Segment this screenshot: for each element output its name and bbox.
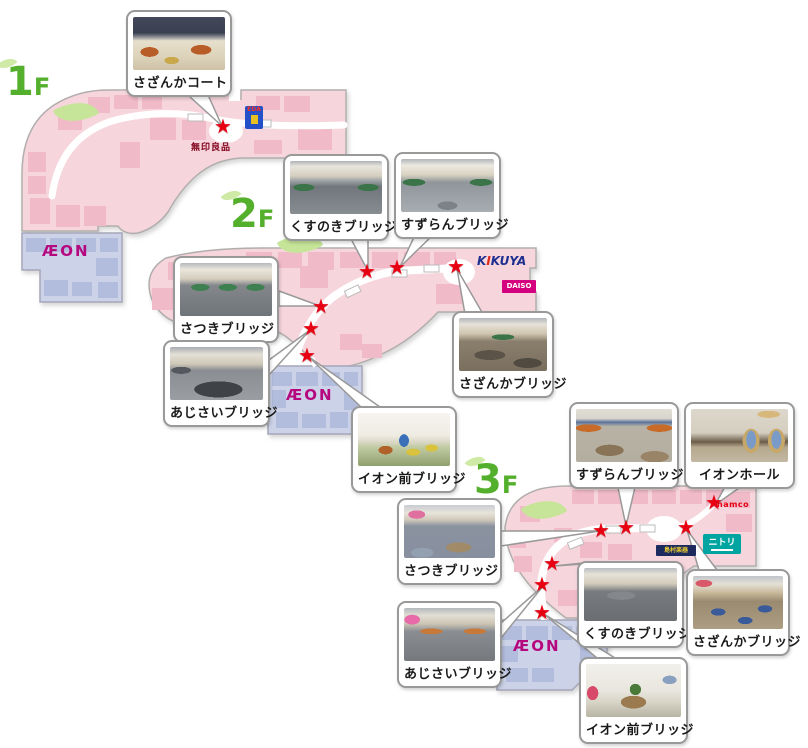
callout-ionmae-bridge-3f: イオン前ブリッジ (579, 657, 688, 744)
star-marker-3f-sazanka: ★ (677, 517, 695, 537)
callout-label: くすのきブリッジ (290, 214, 382, 238)
star-marker-1f-sazanka-court: ★ (214, 116, 232, 136)
callout-label: すずらんブリッジ (576, 462, 672, 486)
photo-aeon-hall-3f (691, 409, 788, 462)
photo-ajisai-bridge-2f (170, 347, 263, 400)
callout-label: さざんかブリッジ (693, 629, 783, 653)
star-marker-2f-sazanka: ★ (447, 256, 465, 276)
callout-sazanka-court-1f: さざんかコート (126, 10, 232, 97)
callout-label: イオン前ブリッジ (586, 717, 681, 741)
floor-suffix: F (258, 205, 274, 233)
callout-ionmae-bridge-2f: イオン前ブリッジ (351, 406, 457, 493)
photo-sazanka-bridge-3f (693, 576, 783, 629)
star-marker-3f-kusunoki: ★ (543, 553, 561, 573)
callout-satsuki-bridge-3f: さつきブリッジ (397, 498, 502, 585)
callout-label: イオンホール (691, 462, 788, 486)
floor-number: 2 (230, 191, 258, 237)
callout-ajisai-bridge-3f: あじさいブリッジ (397, 601, 502, 688)
callout-label: さつきブリッジ (180, 316, 272, 340)
aeon-logo-3f: ÆON (513, 637, 561, 655)
photo-suzuran-bridge-3f (576, 409, 672, 462)
star-marker-3f-ajisai: ★ (533, 574, 551, 594)
photo-sazanka-court (133, 17, 225, 70)
callout-ajisai-bridge-2f: あじさいブリッジ (163, 340, 270, 427)
callout-suzuran-bridge-3f: すずらんブリッジ (569, 402, 679, 489)
photo-ajisai-bridge-3f (404, 608, 495, 661)
photo-ionmae-bridge-2f (358, 413, 450, 466)
shimamura-logo-3f: 島村楽器 (656, 545, 696, 556)
nitori-logo-3f: ニトリ (703, 534, 741, 554)
photo-kusunoki-bridge-2f (290, 161, 382, 214)
floor-suffix: F (502, 471, 518, 499)
callout-sazanka-bridge-2f: さざんかブリッジ (452, 311, 554, 398)
floor-suffix: F (34, 73, 50, 101)
floor-label-1f: 1F (6, 58, 76, 116)
floor-number: 3 (474, 457, 502, 503)
logo-underline (711, 549, 733, 551)
callout-label: あじさいブリッジ (404, 661, 495, 685)
callout-label: さざんかコート (133, 70, 225, 94)
callout-label: さざんかブリッジ (459, 371, 547, 395)
aeon-logo-1f: ÆON (42, 242, 90, 260)
callout-aeon-hall-3f: イオンホール (684, 402, 795, 489)
photo-satsuki-bridge-3f (404, 505, 495, 558)
star-marker-2f-ionmae: ★ (298, 345, 316, 365)
aeon-logo-2f: ÆON (286, 386, 334, 404)
star-marker-3f-suzuran: ★ (617, 517, 635, 537)
photo-kusunoki-bridge-3f (584, 568, 677, 621)
muji-store-label: 無印良品 (191, 140, 231, 153)
callout-sazanka-bridge-3f: さざんかブリッジ (686, 569, 790, 656)
callout-label: さつきブリッジ (404, 558, 495, 582)
callout-kusunoki-bridge-2f: くすのきブリッジ (283, 154, 389, 241)
callout-label: すずらんブリッジ (401, 212, 494, 236)
star-marker-3f-satsuki: ★ (592, 520, 610, 540)
callout-kusunoki-bridge-3f: くすのきブリッジ (577, 561, 684, 648)
star-marker-3f-ionmae: ★ (533, 602, 551, 622)
photo-ionmae-bridge-3f (586, 664, 681, 717)
kikuya-logo-2f: KIKUYA (477, 254, 526, 268)
blue-store-logo-1f: EDA (245, 106, 263, 129)
star-marker-2f-satsuki: ★ (312, 296, 330, 316)
callout-label: くすのきブリッジ (584, 621, 677, 645)
star-marker-2f-ajisai: ★ (302, 318, 320, 338)
callout-label: イオン前ブリッジ (358, 466, 450, 490)
photo-suzuran-bridge-2f (401, 159, 494, 212)
star-marker-2f-suzuran: ★ (388, 257, 406, 277)
floor-map-page: 1F 2F 3F ÆON ÆON ÆON 無印良品 EDA KIKUYA DAI… (0, 0, 808, 748)
photo-sazanka-bridge-2f (459, 318, 547, 371)
callout-satsuki-bridge-2f: さつきブリッジ (173, 256, 279, 343)
star-marker-2f-kusunoki: ★ (358, 261, 376, 281)
callout-suzuran-bridge-2f: すずらんブリッジ (394, 152, 501, 239)
star-marker-3f-ionhall: ★ (705, 492, 723, 512)
logo-mark (251, 115, 258, 124)
callout-label: あじさいブリッジ (170, 400, 263, 424)
floor-number: 1 (6, 59, 34, 105)
photo-satsuki-bridge-2f (180, 263, 272, 316)
daiso-logo-2f: DAISO (502, 280, 536, 293)
